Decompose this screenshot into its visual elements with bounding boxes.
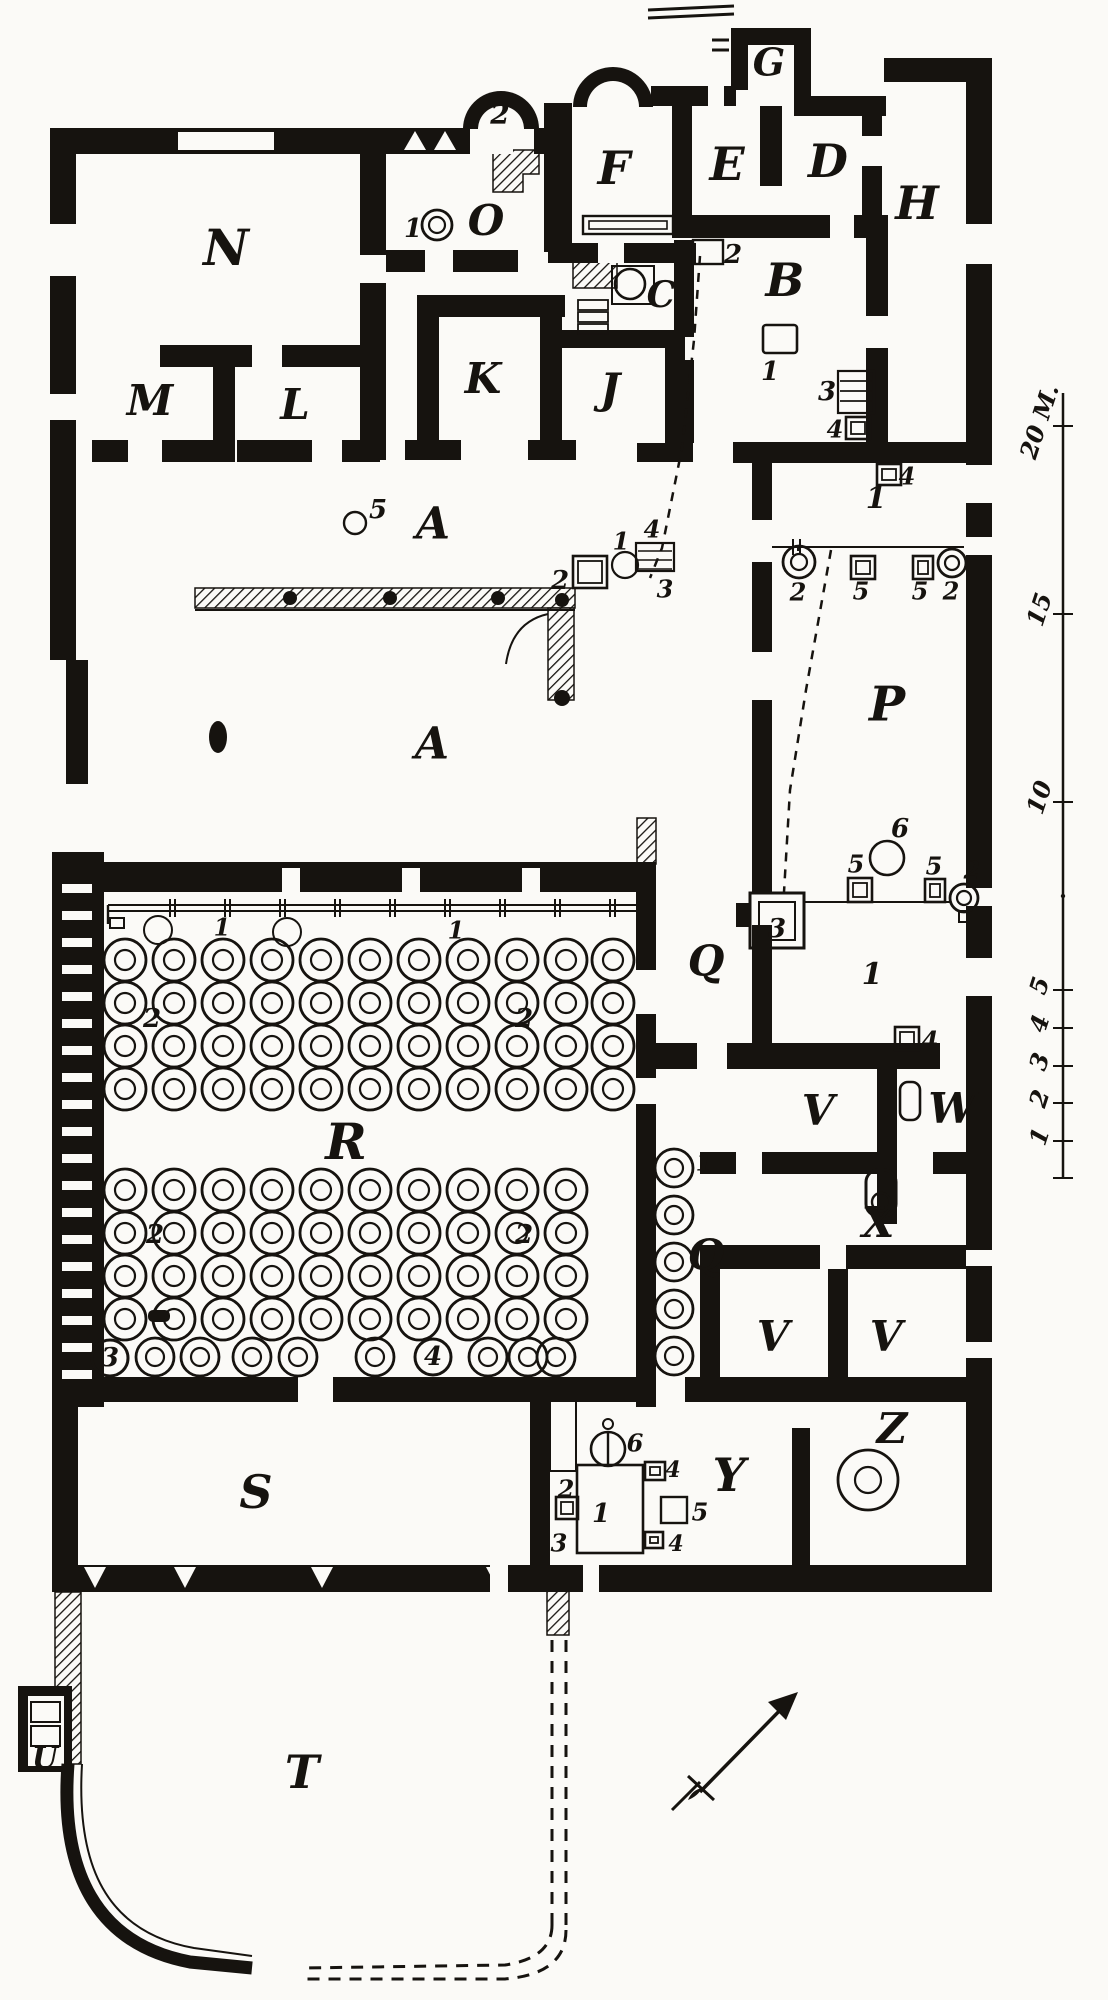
feature-number: 5 bbox=[926, 852, 943, 881]
feature-number: 1 bbox=[214, 913, 231, 942]
room-label-T: T bbox=[285, 1745, 323, 1799]
circled-number: 3 bbox=[101, 1343, 119, 1373]
feature-number: 4 bbox=[922, 1026, 939, 1055]
feature-number: 2 bbox=[489, 98, 509, 131]
room-label-L: L bbox=[279, 380, 310, 429]
feature-number: 4 bbox=[665, 1457, 680, 1483]
room-label-D: D bbox=[806, 134, 848, 188]
room-label-H: H bbox=[893, 176, 940, 230]
feature-number: 2 bbox=[142, 1004, 161, 1034]
room-label-A2: A bbox=[411, 719, 449, 770]
room-label-C: C bbox=[647, 274, 676, 316]
feature-number: 5 bbox=[369, 495, 387, 525]
room-label-M: M bbox=[125, 376, 175, 425]
feature-number: 1 bbox=[613, 527, 630, 556]
room-label-K: K bbox=[464, 354, 503, 403]
feature-number: 4 bbox=[899, 462, 916, 491]
feature-number: 3 bbox=[551, 1529, 568, 1558]
room-label-S: S bbox=[239, 1465, 272, 1519]
feature-number: 4 bbox=[644, 515, 661, 544]
feature-number: 5 bbox=[853, 577, 870, 606]
feature-number: 3 bbox=[657, 575, 674, 604]
room-label-N: N bbox=[201, 218, 251, 277]
room-label-E: E bbox=[707, 137, 745, 191]
room-label-G: G bbox=[753, 40, 785, 85]
room-label-Z: Z bbox=[875, 1404, 909, 1453]
feature-number: 2 bbox=[514, 1004, 533, 1034]
feature-number: 6 bbox=[891, 814, 909, 844]
room-label-R: R bbox=[323, 1112, 367, 1171]
feature-number: 2 bbox=[145, 1220, 164, 1250]
feature-number: 2 bbox=[514, 1220, 533, 1250]
scanned-plan-page: NMLKJOFEGDHBCAAPQQRSVWXVVYZUT12213441255… bbox=[0, 0, 1108, 2000]
feature-number: 5 bbox=[848, 850, 865, 879]
room-label-X: X bbox=[859, 1198, 896, 1247]
feature-number: 1 bbox=[592, 1499, 610, 1529]
feature-number: 1 bbox=[862, 957, 883, 992]
feature-number: 2 bbox=[789, 578, 807, 607]
feature-number: 3 bbox=[768, 914, 786, 944]
room-label-U: U bbox=[32, 1741, 60, 1776]
room-label-W: W bbox=[928, 1084, 979, 1133]
room-label-A1: A bbox=[412, 499, 450, 550]
room-label-O: O bbox=[468, 196, 505, 245]
feature-number: 2 bbox=[550, 566, 569, 596]
room-label-B: B bbox=[764, 253, 805, 307]
room-label-V2: V bbox=[757, 1312, 794, 1361]
feature-number: 2 bbox=[942, 577, 960, 606]
pillar-base bbox=[209, 721, 227, 753]
feature-number: 1 bbox=[866, 481, 887, 516]
room-label-P: P bbox=[867, 677, 907, 733]
room-label-V3: V bbox=[870, 1312, 907, 1361]
feature-number: 1 bbox=[696, 1148, 713, 1177]
feature-number: 2 bbox=[723, 240, 742, 270]
feature-number: 4 bbox=[827, 415, 844, 444]
feature-number: 2 bbox=[557, 1475, 575, 1504]
circled-number: 4 bbox=[424, 1342, 442, 1372]
feature-number: 6 bbox=[627, 1429, 644, 1458]
feature-number: 1 bbox=[761, 357, 779, 387]
feature-number: 1 bbox=[404, 214, 422, 244]
room-label-V1: V bbox=[802, 1086, 839, 1135]
room-label-Q1: Q bbox=[688, 936, 725, 985]
room-label-Q2: Q bbox=[688, 1230, 725, 1279]
feature-number: 5 bbox=[692, 1498, 709, 1527]
feature-number: 5 bbox=[912, 577, 929, 606]
floor-plan-svg: NMLKJOFEGDHBCAAPQQRSVWXVVYZUT12213441255… bbox=[0, 0, 1108, 2000]
feature-number: 4 bbox=[668, 1531, 683, 1557]
feature-number: 1 bbox=[448, 916, 465, 945]
room-label-Y: Y bbox=[713, 1448, 750, 1502]
room-label-F: F bbox=[596, 141, 634, 195]
feature-number: 3 bbox=[818, 377, 836, 407]
feature-number: 2 bbox=[963, 856, 981, 885]
